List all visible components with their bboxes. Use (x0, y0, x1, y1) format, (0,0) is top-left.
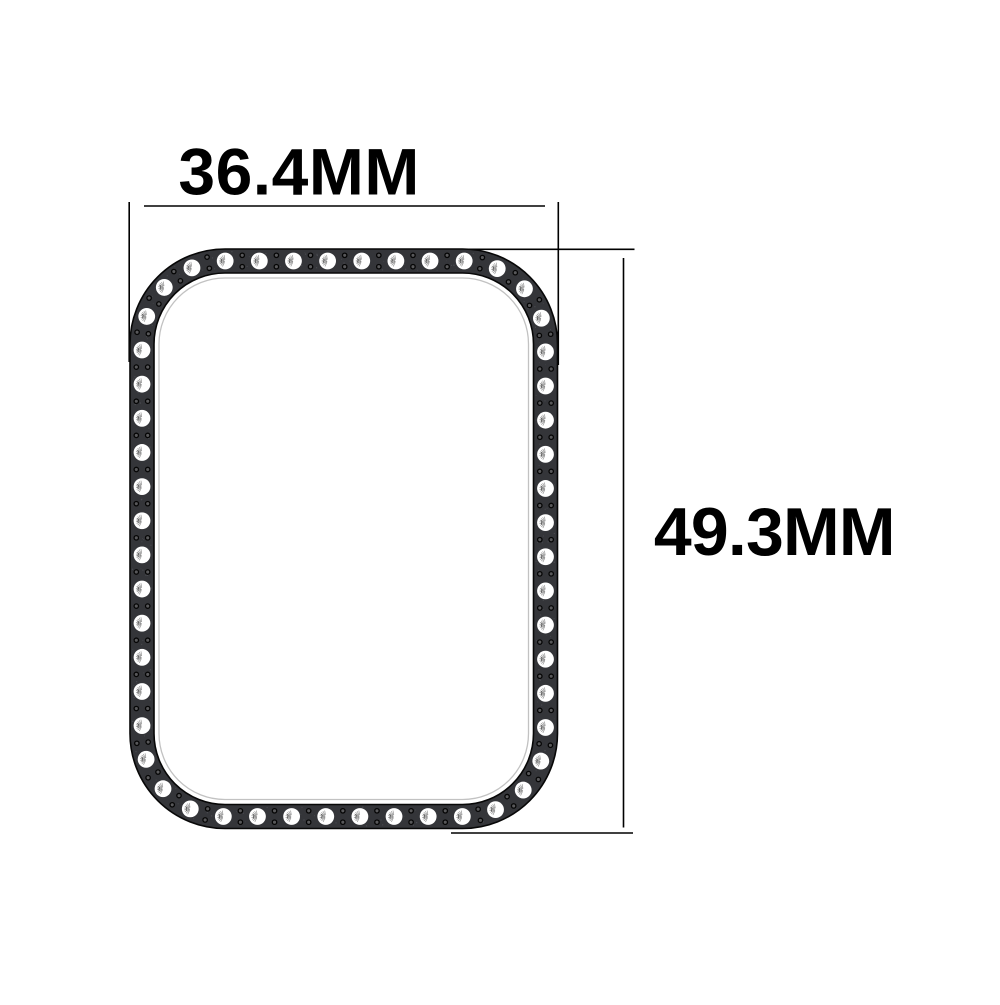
svg-text:49.3MM: 49.3MM (654, 494, 895, 570)
svg-text:36.4MM: 36.4MM (178, 135, 419, 209)
